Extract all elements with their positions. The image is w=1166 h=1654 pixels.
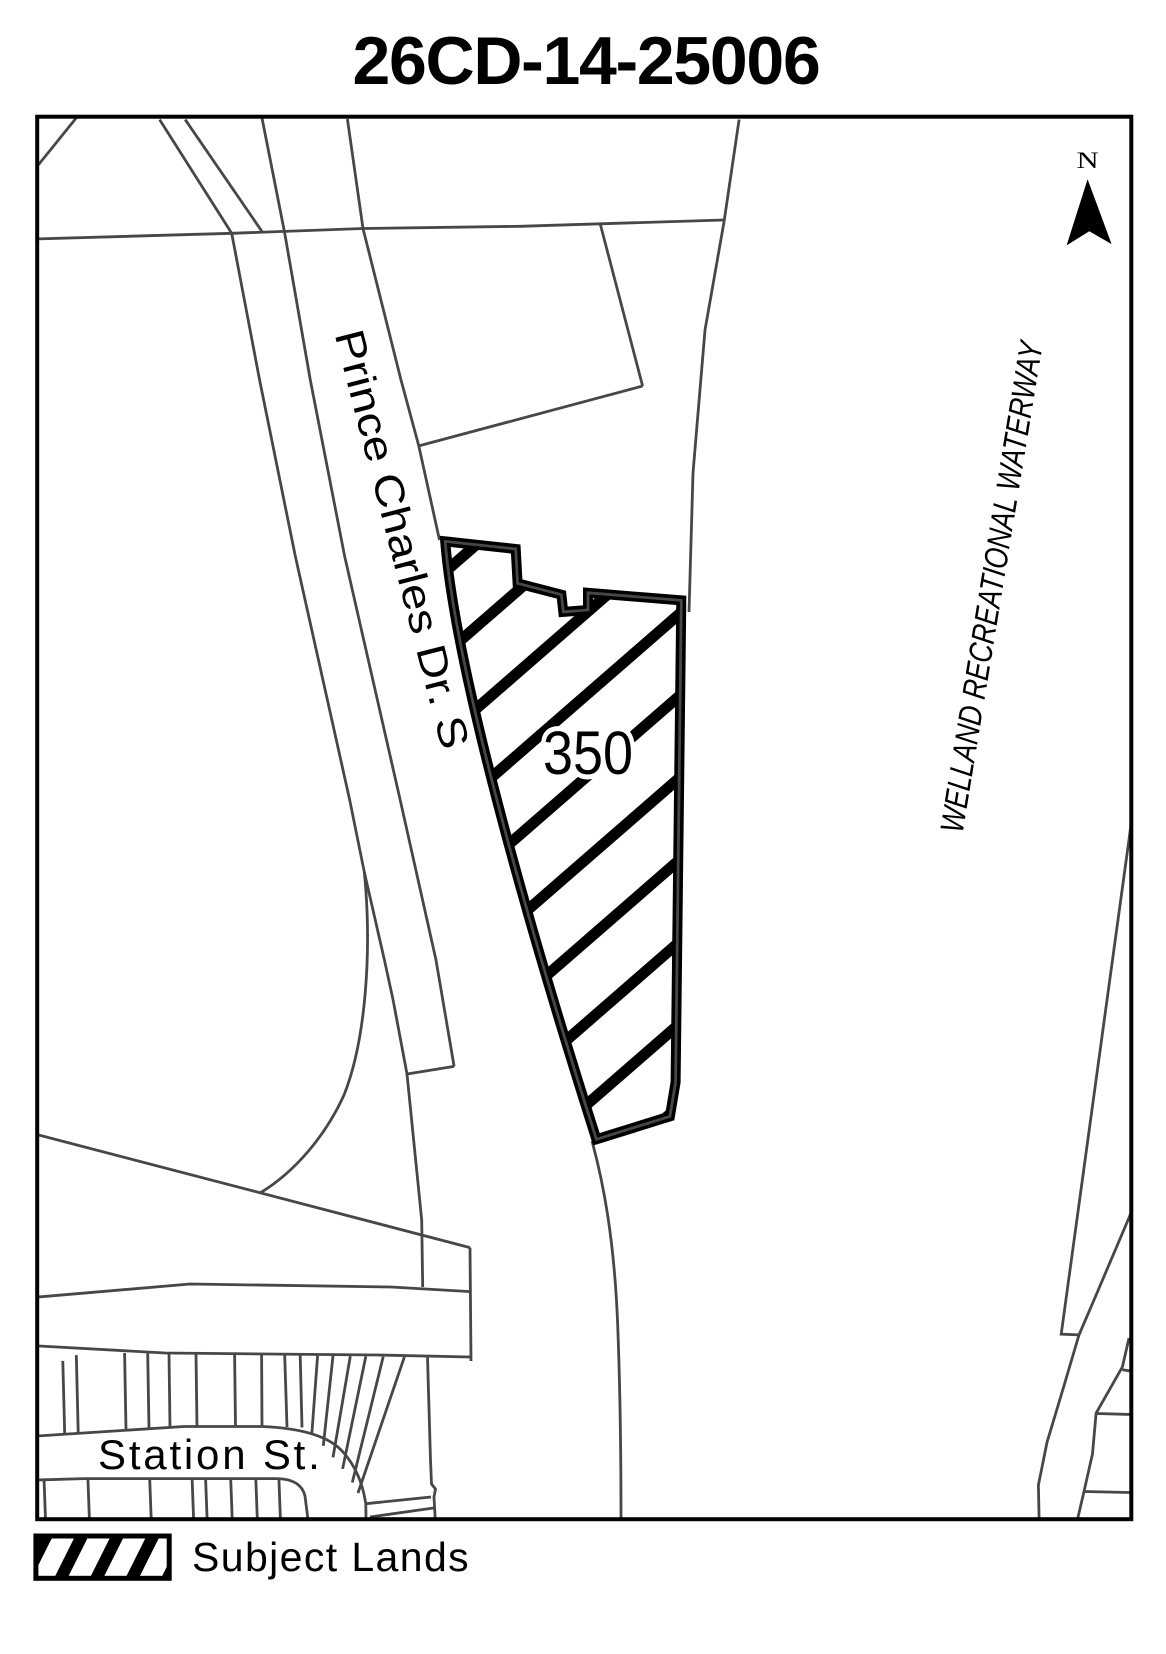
svg-text:350: 350	[543, 719, 633, 787]
svg-text:26CD-14-25006: 26CD-14-25006	[353, 23, 820, 99]
svg-text:N: N	[1076, 147, 1098, 173]
svg-text:Station St.: Station St.	[98, 1431, 323, 1478]
svg-text:Subject Lands: Subject Lands	[192, 1534, 470, 1580]
